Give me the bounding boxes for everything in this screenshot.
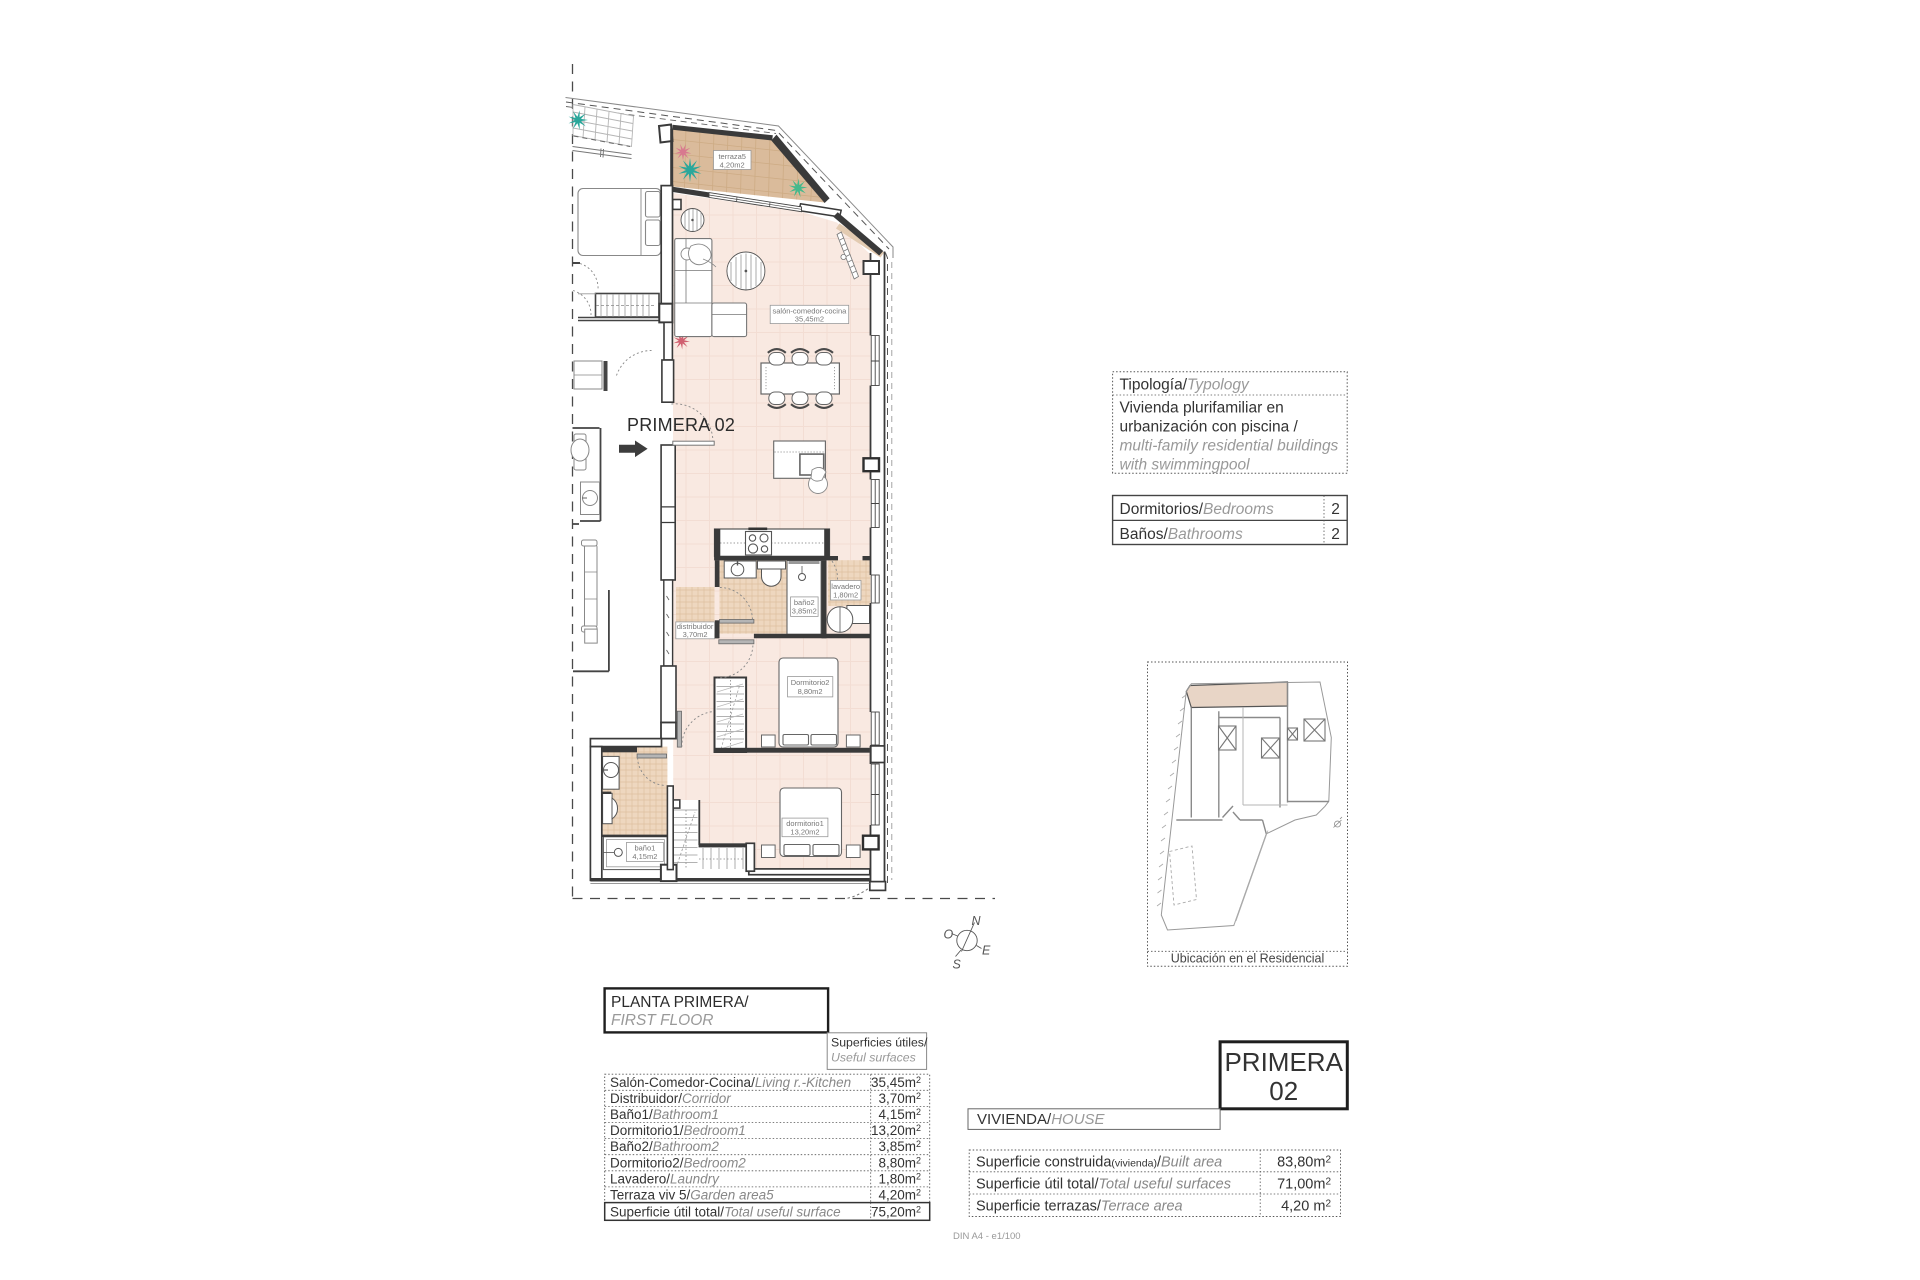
svg-text:with swimmingpool: with swimmingpool [1120,457,1251,474]
svg-text:4,15m2: 4,15m2 [632,852,657,861]
svg-text:2: 2 [1331,526,1340,543]
svg-text:4,20m2: 4,20m2 [720,160,745,169]
svg-text:E: E [982,944,991,958]
svg-text:35,45m2: 35,45m2 [871,1075,921,1090]
svg-text:4,20 m2: 4,20 m2 [1281,1199,1331,1215]
svg-text:N: N [972,914,982,928]
svg-text:PRIMERA: PRIMERA [1224,1047,1343,1077]
svg-text:DIN A4 - e1/100: DIN A4 - e1/100 [953,1231,1021,1242]
svg-text:3,85m2: 3,85m2 [792,607,817,616]
svg-text:3,70m2: 3,70m2 [683,630,708,639]
svg-text:Dormitorio2: Dormitorio2 [791,678,830,687]
svg-text:Dormitorio1/Bedroom1: Dormitorio1/Bedroom1 [610,1123,746,1138]
svg-text:Baño2/Bathroom2: Baño2/Bathroom2 [610,1139,719,1154]
svg-text:FIRST FLOOR: FIRST FLOOR [611,1012,713,1029]
svg-text:Lavadero/Laundry: Lavadero/Laundry [610,1171,720,1186]
svg-text:02: 02 [1269,1076,1298,1106]
svg-text:13,20m2: 13,20m2 [871,1123,921,1138]
svg-text:Terraza viv 5/Garden area5: Terraza viv 5/Garden area5 [610,1188,774,1203]
svg-text:1,80m2: 1,80m2 [833,590,858,599]
svg-text:Dormitorio2/Bedroom2: Dormitorio2/Bedroom2 [610,1155,746,1170]
svg-text:PRIMERA 02: PRIMERA 02 [627,415,735,435]
svg-text:Vivienda plurifamiliar en: Vivienda plurifamiliar en [1120,400,1284,417]
svg-text:Superficie útil total/Total us: Superficie útil total/Total useful surfa… [610,1204,841,1219]
svg-text:83,80m2: 83,80m2 [1277,1155,1331,1171]
svg-text:O: O [944,928,954,942]
svg-text:PLANTA PRIMERA/: PLANTA PRIMERA/ [611,994,749,1011]
svg-text:2: 2 [1331,501,1340,518]
svg-text:Baños/Bathrooms: Baños/Bathrooms [1120,526,1243,543]
svg-text:Ubicación en el Residencial: Ubicación en el Residencial [1171,952,1325,966]
svg-text:S: S [953,958,962,972]
svg-text:1,80m2: 1,80m2 [878,1171,921,1186]
svg-text:3,85m2: 3,85m2 [878,1139,921,1154]
svg-text:VIVIENDA/HOUSE: VIVIENDA/HOUSE [977,1111,1106,1128]
svg-text:multi-family residential build: multi-family residential buildings [1120,438,1339,455]
svg-text:Superficie construida(vivienda: Superficie construida(vivienda)/Built ar… [976,1155,1222,1171]
svg-text:Dormitorios/Bedrooms: Dormitorios/Bedrooms [1120,501,1274,518]
svg-text:Superficie terrazas/Terrace ar: Superficie terrazas/Terrace area [976,1199,1183,1215]
svg-text:Distribuidor/Corridor: Distribuidor/Corridor [610,1091,731,1106]
svg-text:Tipología/Typology: Tipología/Typology [1120,377,1250,394]
svg-text:Useful surfaces: Useful surfaces [831,1051,916,1065]
svg-text:4,15m2: 4,15m2 [878,1107,921,1122]
svg-text:4,20m2: 4,20m2 [878,1188,921,1203]
svg-text:urbanización con piscina /: urbanización con piscina / [1120,419,1299,436]
svg-text:35,45m2: 35,45m2 [795,315,824,324]
svg-text:Superficie útil total/Total us: Superficie útil total/Total useful surfa… [976,1177,1231,1193]
svg-text:Salón-Comedor-Cocina/Living r.: Salón-Comedor-Cocina/Living r.-Kitchen [610,1075,851,1090]
svg-text:8,80m2: 8,80m2 [878,1155,921,1170]
svg-text:8,80m2: 8,80m2 [798,687,823,696]
svg-text:71,00m2: 71,00m2 [1277,1177,1331,1193]
svg-text:13,20m2: 13,20m2 [790,828,819,837]
svg-text:3,70m2: 3,70m2 [878,1091,921,1106]
svg-text:Superficies útiles/: Superficies útiles/ [831,1036,928,1050]
svg-text:75,20m2: 75,20m2 [871,1204,921,1219]
svg-text:Baño1/Bathroom1: Baño1/Bathroom1 [610,1107,719,1122]
